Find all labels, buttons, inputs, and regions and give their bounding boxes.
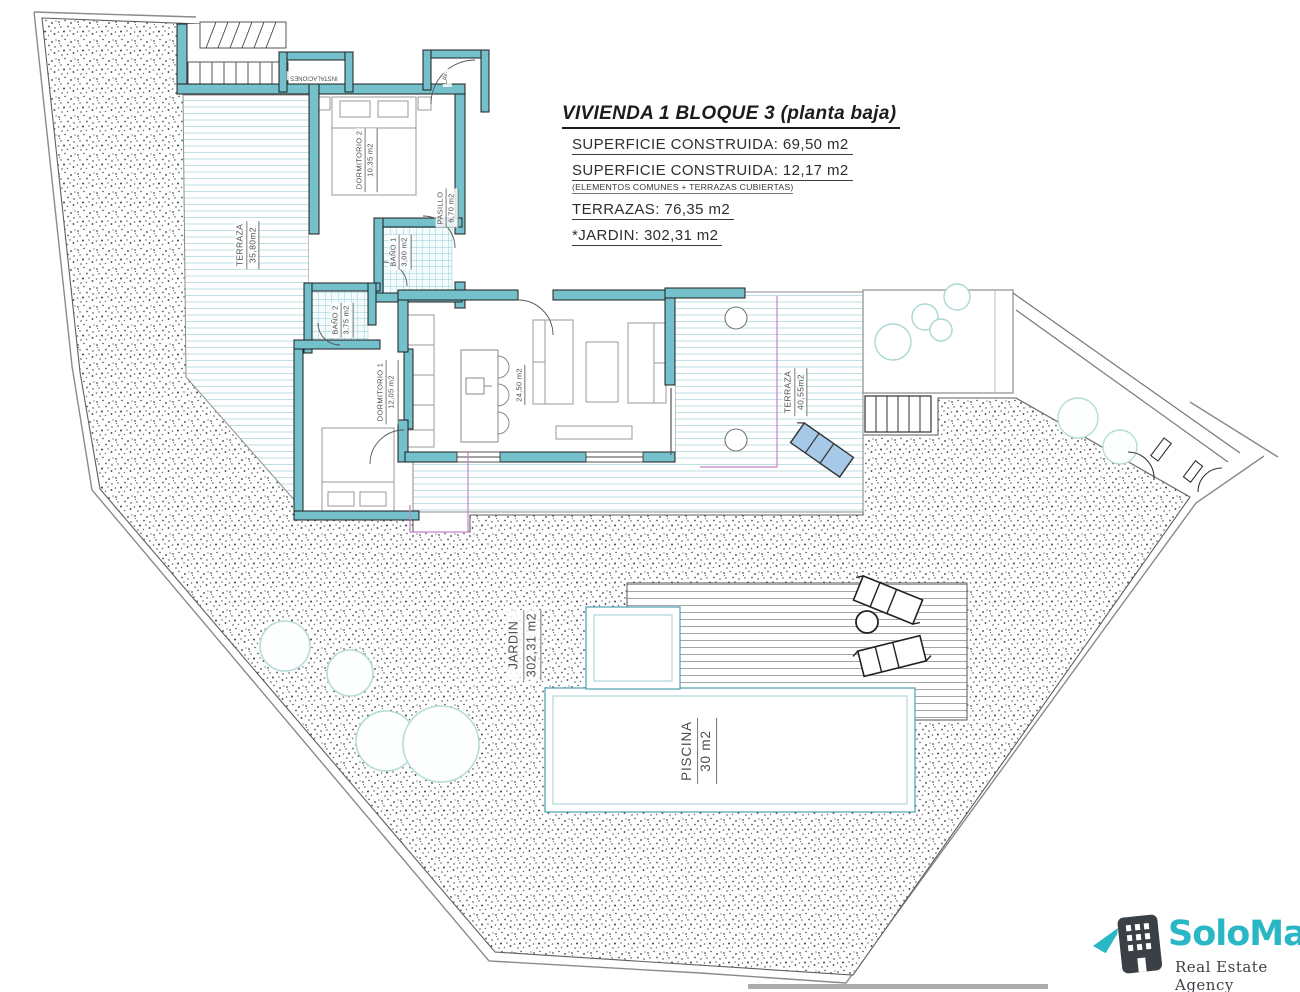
- surface-built-1: SUPERFICIE CONSTRUIDA: 69,50 m2: [572, 136, 853, 155]
- pool: [545, 688, 915, 812]
- pool-label: PISCINA 30 m2: [679, 718, 717, 784]
- round-table-icon: [856, 611, 878, 633]
- plan-title: VIVIENDA 1 BLOQUE 3 (planta baja): [562, 103, 900, 129]
- jardin-row: *JARDIN: 302,31 m2: [572, 227, 722, 246]
- round-table-icon: [725, 307, 747, 329]
- room-label-dormitorio2: DORMITORIO 2 10,35 m2: [355, 128, 378, 192]
- surface-built-2: SUPERFICIE CONSTRUIDA: 12,17 m2: [572, 162, 853, 181]
- agency-logo: SoloMar Real Estate Agency: [1092, 908, 1297, 988]
- stairs-icon: [865, 396, 931, 432]
- round-table-icon: [725, 429, 747, 451]
- room-label-instalaciones: INSTALACIONES: [287, 72, 341, 81]
- room-label-bano1: BAÑO 1 3,00 m2: [389, 234, 412, 269]
- room-label-bano2: BAÑO 2 3,75 m2: [331, 302, 354, 337]
- solomar-logo-icon: [1092, 908, 1170, 978]
- room-label-dormitorio1: DORMITORIO 1 12,05 m2: [376, 360, 399, 424]
- room-label-salon-area: 24,50 m2: [514, 365, 525, 405]
- console-table-icon: [556, 426, 632, 439]
- room-label-pasillo: PASILLO 6,70 m2: [436, 189, 459, 228]
- room-label-terraza-east: TERRAZA 40,55m2: [782, 368, 807, 416]
- floor-plan-page: TERRAZA 35,80m2 DORMITORIO 2 10,35 m2 PA…: [0, 0, 1300, 992]
- logo-brand-text: SoloMar: [1168, 914, 1300, 954]
- logo-tagline-text: Real Estate Agency: [1175, 958, 1297, 992]
- road-edge: [748, 984, 1048, 989]
- pergola-patio: [863, 284, 1013, 393]
- surface-note: (ELEMENTOS COMUNES + TERRAZAS CUBIERTAS): [572, 182, 793, 194]
- coffee-table-icon: [586, 342, 618, 402]
- terrazas-row: TERRAZAS: 76,35 m2: [572, 201, 734, 220]
- bed-icon: [322, 428, 394, 512]
- title-block: VIVIENDA 1 BLOQUE 3 (planta baja) SUPERF…: [562, 103, 900, 246]
- room-label-lavadero: LAV.: [443, 69, 452, 87]
- room-label-terraza-nw: TERRAZA 35,80m2: [234, 221, 259, 269]
- pool-step-platform: [586, 607, 680, 689]
- garden-label: JARDIN 302,31 m2: [506, 610, 541, 680]
